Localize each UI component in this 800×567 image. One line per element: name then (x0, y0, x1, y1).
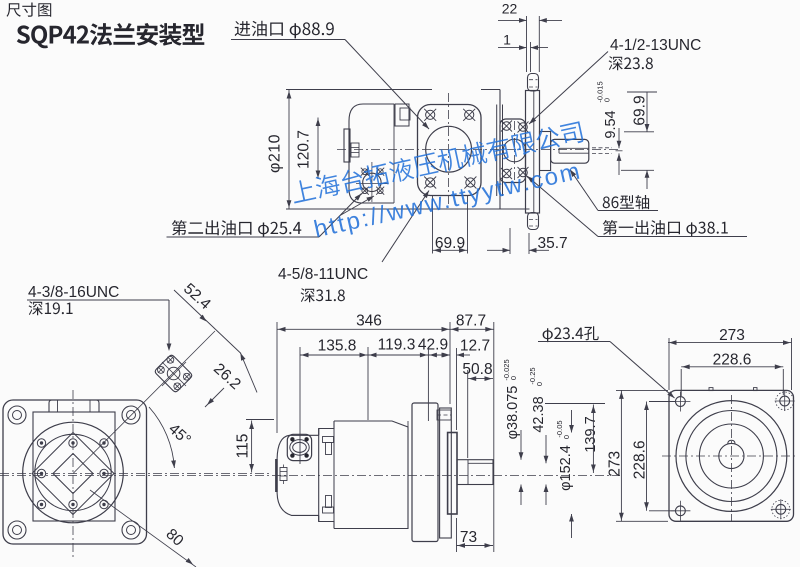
svg-text:4-1/2-13UNC: 4-1/2-13UNC (610, 37, 701, 54)
svg-text:-0.025: -0.025 (502, 359, 511, 380)
svg-text:69.9: 69.9 (435, 235, 465, 252)
svg-text:87.7: 87.7 (456, 313, 486, 330)
svg-text:42.38: 42.38 (531, 396, 547, 432)
svg-text:228.6: 228.6 (713, 352, 752, 369)
svg-text:4-3/8-16UNC: 4-3/8-16UNC (28, 284, 119, 301)
svg-text:12.7: 12.7 (460, 338, 490, 355)
svg-text:1: 1 (503, 32, 511, 48)
svg-text:φ38.075: φ38.075 (505, 386, 521, 440)
svg-text:120.7: 120.7 (296, 130, 313, 169)
svg-text:4-5/8-11UNC: 4-5/8-11UNC (278, 266, 368, 283)
svg-text:42.9: 42.9 (418, 337, 448, 354)
svg-text:273: 273 (607, 451, 624, 477)
svg-text:φ152.4: φ152.4 (558, 445, 574, 491)
svg-text:73: 73 (460, 529, 477, 546)
svg-text:50.8: 50.8 (462, 361, 492, 378)
svg-text:35.7: 35.7 (538, 235, 568, 252)
svg-text:346: 346 (356, 313, 382, 330)
svg-text:22: 22 (502, 1, 518, 17)
svg-text:φ210: φ210 (267, 134, 284, 173)
svg-text:273: 273 (719, 327, 745, 344)
svg-text:-0.015: -0.015 (596, 81, 605, 102)
svg-text:69.9: 69.9 (632, 95, 649, 125)
svg-text:-0.05: -0.05 (555, 420, 564, 437)
svg-text:228.6: 228.6 (632, 440, 649, 479)
svg-text:-0.25: -0.25 (528, 367, 537, 384)
svg-text:139.7: 139.7 (583, 416, 599, 452)
svg-text:9.54: 9.54 (603, 110, 619, 138)
svg-text:115: 115 (235, 434, 252, 459)
svg-text:119.3: 119.3 (378, 337, 416, 354)
svg-text:135.8: 135.8 (318, 338, 357, 355)
